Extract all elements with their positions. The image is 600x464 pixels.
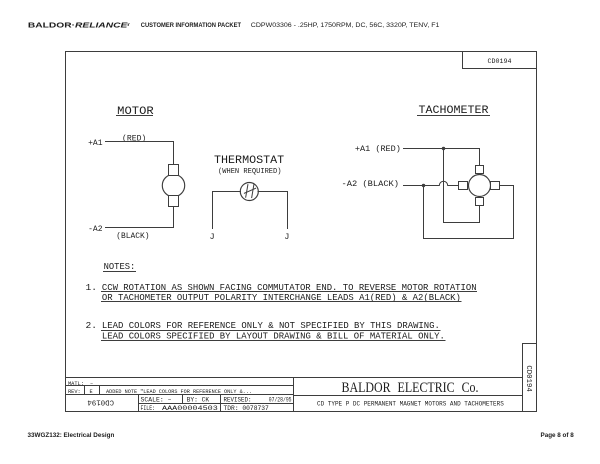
svg-text:07/28/95: 07/28/95 [269,396,292,403]
svg-text:NOTES:: NOTES: [104,261,136,272]
svg-text:REVISED:: REVISED: [224,396,252,403]
svg-text:(WHEN REQUIRED): (WHEN REQUIRED) [218,168,282,176]
svg-text:-A2: -A2 [88,224,103,234]
svg-text:TDR: 0078737: TDR: 0078737 [224,405,270,412]
svg-text:SCALE: –: SCALE: – [141,396,172,403]
svg-text:BY: CK: BY: CK [187,396,210,403]
svg-text:+A1: +A1 [88,138,103,148]
svg-text:CUSTOMER INFORMATION PACKET: CUSTOMER INFORMATION PACKET [141,22,241,29]
svg-text:Page 8 of 8: Page 8 of 8 [541,432,575,439]
svg-text:ADDED NOTE "LEAD COLORS FOR RE: ADDED NOTE "LEAD COLORS FOR REFERENCE ON… [106,389,252,395]
svg-text:CDPW03306 - .25HP, 1750RPM, DC: CDPW03306 - .25HP, 1750RPM, DC, 56C, 332… [251,22,440,29]
svg-text:CD0194: CD0194 [488,58,512,65]
svg-text:CD0194: CD0194 [524,365,532,392]
svg-text:J: J [284,232,289,242]
svg-text:J: J [210,232,215,242]
svg-text:MATL:: MATL: [68,381,84,387]
svg-text:+A1 (RED): +A1 (RED) [355,144,401,154]
svg-text:THERMOSTAT: THERMOSTAT [214,155,285,167]
svg-text:CD TYPE P DC PERMANENT MAGNET: CD TYPE P DC PERMANENT MAGNET MOTORS AND… [317,401,504,408]
svg-text:AAA00004503: AAA00004503 [162,405,218,412]
svg-text:FILE:: FILE: [141,405,156,412]
svg-text:–: – [90,381,93,387]
svg-text:REV:: REV: [68,389,81,395]
svg-text:33WGZ132: Electrical Design: 33WGZ132: Electrical Design [28,432,115,439]
svg-text:1.: 1. [86,282,98,293]
svg-text:BALDOR·RELIANCEr: BALDOR·RELIANCEr [28,22,130,30]
svg-text:-A2 (BLACK): -A2 (BLACK) [342,179,400,189]
svg-text:CD0194: CD0194 [87,397,114,405]
svg-text:E: E [90,389,93,395]
svg-text:2.: 2. [86,320,98,331]
svg-text:(BLACK): (BLACK) [116,231,149,241]
svg-text:LEAD COLORS SPECIFIED BY LAYOU: LEAD COLORS SPECIFIED BY LAYOUT DRAWING … [102,330,445,341]
svg-text:BALDOR ELECTRIC Co.: BALDOR ELECTRIC Co. [342,380,479,396]
